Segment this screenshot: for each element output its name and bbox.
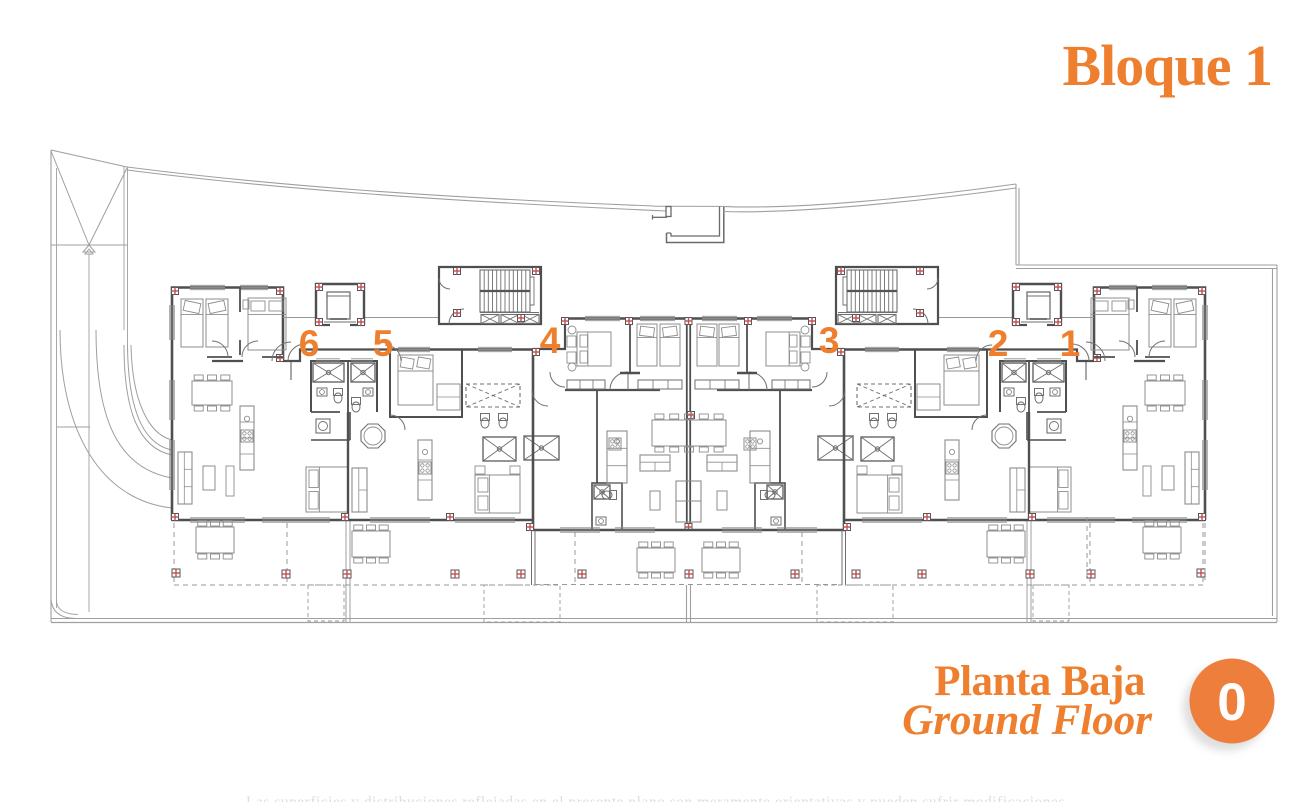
svg-text:Las superficies y distribucion: Las superficies y distribuciones refleja… [246,794,1065,802]
svg-text:3: 3 [819,320,840,361]
svg-text:0: 0 [1217,673,1246,732]
svg-text:4: 4 [540,320,561,361]
svg-text:2: 2 [988,323,1009,364]
svg-text:5: 5 [373,323,394,364]
svg-text:6: 6 [299,323,320,364]
svg-text:1: 1 [1060,323,1081,364]
svg-text:Ground Floor: Ground Floor [902,697,1153,744]
svg-text:Bloque 1: Bloque 1 [1062,33,1272,98]
